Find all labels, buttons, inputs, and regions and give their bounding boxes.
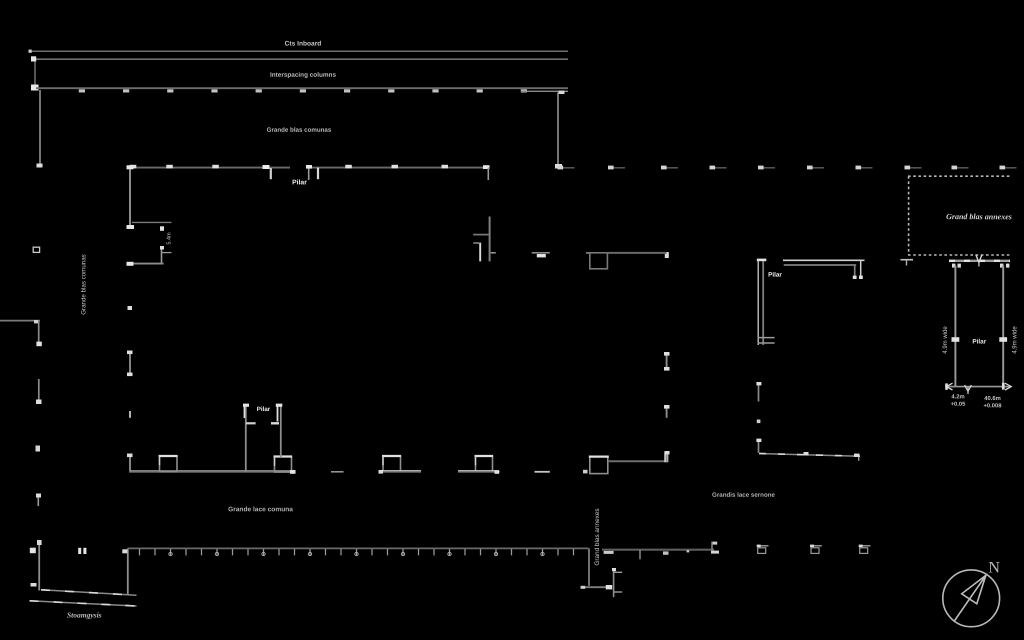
svg-text:5.4m: 5.4m: [167, 232, 173, 245]
svg-text:Pilar: Pilar: [257, 406, 271, 413]
svg-text:Grand blas annexes: Grand blas annexes: [594, 508, 601, 565]
svg-text:N: N: [988, 560, 1000, 577]
svg-text:Grande blas comunas: Grande blas comunas: [267, 127, 332, 134]
svg-text:+0.008: +0.008: [984, 403, 1003, 409]
svg-text:Cts Inboard: Cts Inboard: [285, 40, 322, 47]
svg-text:40.6m: 40.6m: [984, 396, 1000, 402]
svg-text:4.2m: 4.2m: [951, 394, 964, 400]
svg-text:Grandis lace sernone: Grandis lace sernone: [712, 492, 775, 499]
svg-text:4.9m wide: 4.9m wide: [1013, 326, 1019, 354]
svg-text:Grande blas comunas: Grande blas comunas: [81, 254, 88, 315]
svg-text:4.9m wide: 4.9m wide: [943, 326, 949, 354]
svg-text:Stoamgysis: Stoamgysis: [67, 610, 102, 619]
svg-text:Pilar: Pilar: [768, 272, 782, 279]
svg-text:Interspacing columns: Interspacing columns: [270, 72, 336, 79]
svg-text:Pilar: Pilar: [972, 338, 986, 345]
svg-text:Pilar: Pilar: [292, 179, 307, 186]
svg-text:Grand blas annexes: Grand blas annexes: [946, 212, 1012, 221]
svg-text:+0.05: +0.05: [951, 402, 966, 408]
svg-text:Grande lace comuna: Grande lace comuna: [228, 506, 293, 513]
